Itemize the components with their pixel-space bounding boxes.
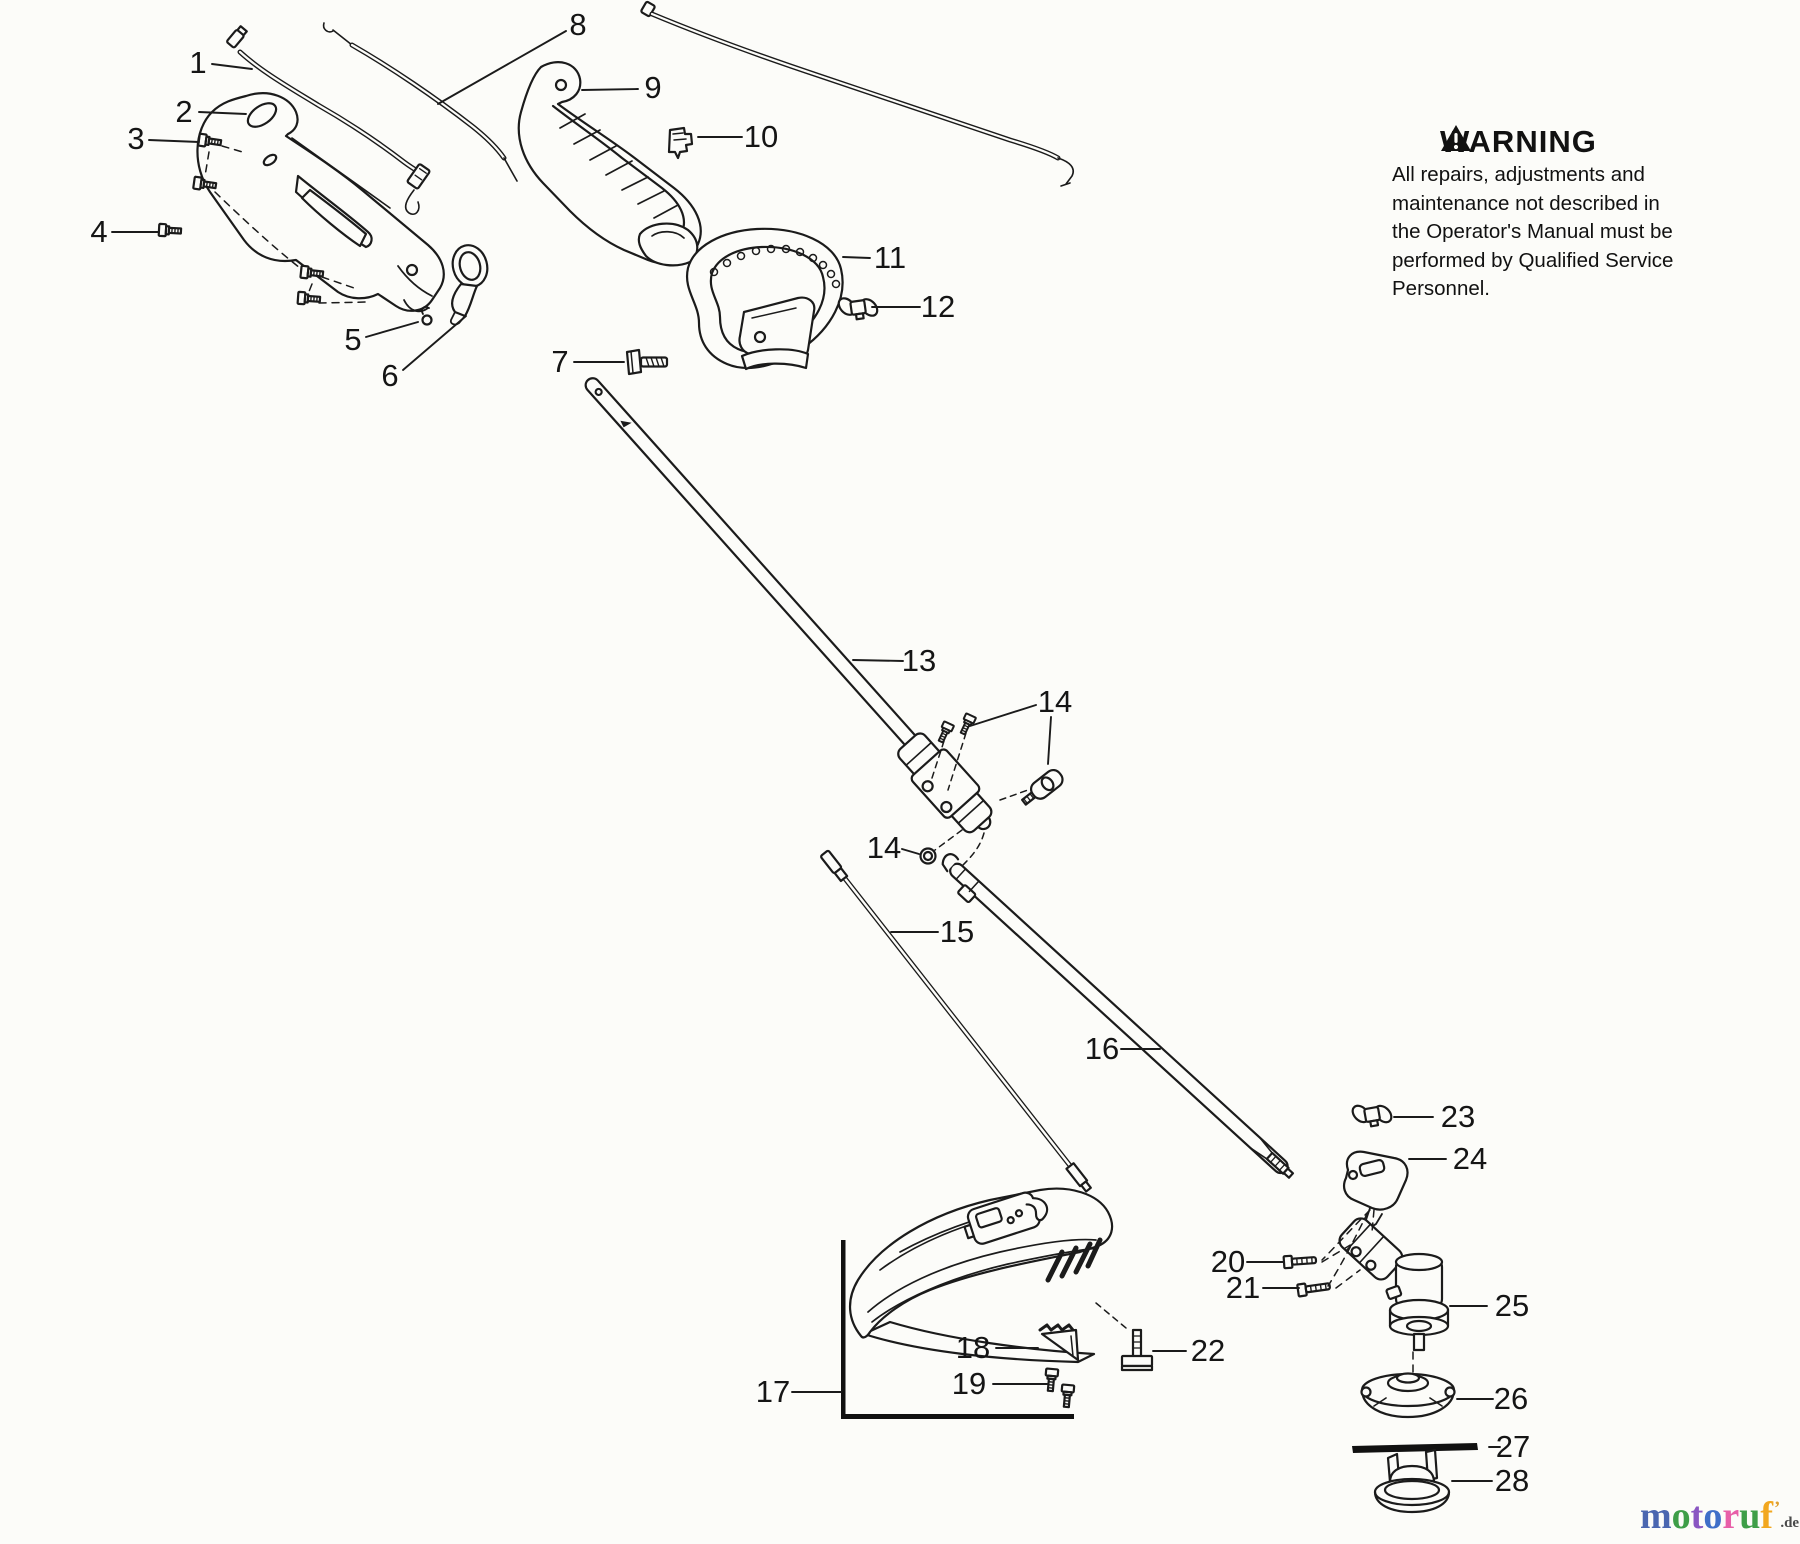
warning-body: All repairs, adjustments and maintenance… bbox=[1392, 161, 1673, 304]
motoruf-logo: motoruf’.de bbox=[1640, 1494, 1799, 1538]
screw-4 bbox=[159, 224, 182, 237]
screw-20 bbox=[1284, 1254, 1317, 1268]
logo-letter: f bbox=[1760, 1495, 1773, 1537]
part-label-12: 12 bbox=[921, 289, 955, 325]
part-23-wing-nut bbox=[1348, 1097, 1396, 1131]
part-label-6: 6 bbox=[381, 358, 398, 394]
screw-pair-b bbox=[298, 292, 321, 306]
part-9-handle-bracket bbox=[519, 62, 701, 265]
part-label-19: 19 bbox=[952, 1366, 986, 1402]
trimmer-parts-diagram: 1 2 3 4 5 6 7 8 9 10 11 12 13 14 14 15 1… bbox=[0, 0, 1800, 1544]
part-label-16: 16 bbox=[1085, 1031, 1119, 1067]
part-label-4: 4 bbox=[90, 214, 107, 250]
coupler-nut bbox=[921, 849, 936, 864]
logo-letter: r bbox=[1722, 1495, 1739, 1537]
part-label-1: 1 bbox=[189, 45, 206, 81]
part-26-trimmer-head bbox=[1362, 1374, 1455, 1418]
logo-letter: o bbox=[1672, 1495, 1691, 1537]
part-label-8: 8 bbox=[569, 7, 586, 43]
bracket-17-horizontal bbox=[841, 1414, 1074, 1419]
warning-line: performed by Qualified Service bbox=[1392, 247, 1673, 276]
part-label-11: 11 bbox=[874, 240, 906, 276]
logo-letter: m bbox=[1640, 1495, 1672, 1537]
part-label-24: 24 bbox=[1453, 1141, 1487, 1177]
warning-triangle-icon bbox=[1440, 124, 1472, 153]
part-10-clip bbox=[669, 128, 692, 158]
part-label-17: 17 bbox=[756, 1374, 790, 1410]
part-label-28: 28 bbox=[1495, 1463, 1529, 1499]
warning-line: All repairs, adjustments and bbox=[1392, 161, 1673, 190]
part-label-15: 15 bbox=[940, 914, 974, 950]
part-11-loop-handle bbox=[687, 229, 843, 369]
part-label-27: 27 bbox=[1496, 1429, 1530, 1465]
part-label-13: 13 bbox=[902, 643, 936, 679]
part-8-throttle-cable bbox=[324, 1, 1074, 186]
logo-letter: u bbox=[1739, 1495, 1760, 1537]
part-label-25: 25 bbox=[1495, 1288, 1529, 1324]
warning-title: WARNING bbox=[1440, 124, 1597, 160]
part-14-coupler bbox=[891, 713, 1066, 866]
part-25-gearbox bbox=[1336, 1215, 1448, 1350]
part-19-screws bbox=[1044, 1368, 1074, 1407]
logo-letter: t bbox=[1691, 1495, 1704, 1537]
part-label-9: 9 bbox=[644, 70, 661, 106]
part-22-bolt bbox=[1122, 1330, 1152, 1370]
logo-suffix: .de bbox=[1780, 1515, 1799, 1531]
part-label-21: 21 bbox=[1226, 1270, 1260, 1306]
part-27-trimmer-line bbox=[1352, 1443, 1478, 1453]
screw-21 bbox=[1297, 1280, 1330, 1296]
part-7-bolt bbox=[627, 350, 667, 374]
logo-letter: o bbox=[1703, 1495, 1722, 1537]
part-15-flex-drive-shaft bbox=[820, 850, 1092, 1192]
part-label-18: 18 bbox=[956, 1330, 990, 1366]
warning-line: the Operator's Manual must be bbox=[1392, 218, 1673, 247]
part-label-7: 7 bbox=[551, 344, 568, 380]
part-label-10: 10 bbox=[744, 119, 778, 155]
warning-line: Personnel. bbox=[1392, 275, 1673, 304]
part-label-14b: 14 bbox=[867, 830, 901, 866]
part-label-23: 23 bbox=[1441, 1099, 1475, 1135]
part-label-14a: 14 bbox=[1038, 684, 1072, 720]
part-16-lower-drive-tube bbox=[933, 851, 1298, 1187]
coupler-knob bbox=[1018, 767, 1065, 810]
part-label-5: 5 bbox=[344, 322, 361, 358]
warning-line: maintenance not described in bbox=[1392, 190, 1673, 219]
part-6-trigger-lockout bbox=[448, 241, 492, 324]
part-label-22: 22 bbox=[1191, 1333, 1225, 1369]
part-24-hanger-bracket bbox=[1344, 1152, 1407, 1226]
part-label-3: 3 bbox=[127, 121, 144, 157]
part-label-26: 26 bbox=[1494, 1381, 1528, 1417]
part-28-spool bbox=[1375, 1450, 1449, 1512]
part-label-2: 2 bbox=[175, 94, 192, 130]
